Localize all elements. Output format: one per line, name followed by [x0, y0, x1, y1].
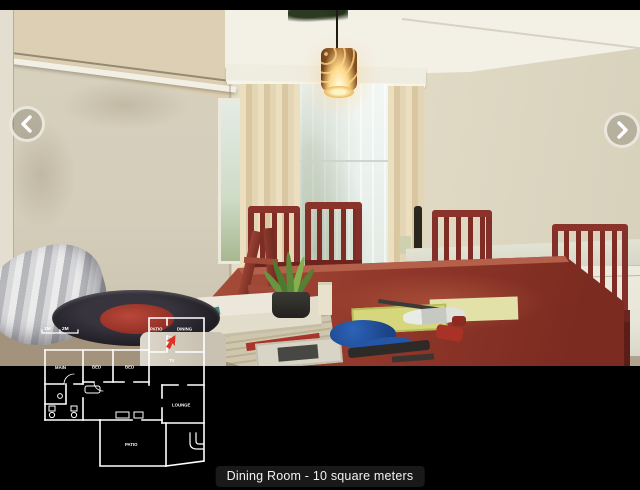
lamp-cord	[336, 10, 338, 50]
floorplan-walls	[42, 318, 204, 466]
red-item	[452, 316, 466, 326]
next-scene-button[interactable]	[604, 112, 640, 148]
room-caption: Dining Room - 10 square meters	[216, 466, 425, 487]
letterbox-top	[0, 0, 640, 10]
room-label-main: MAIN	[55, 365, 66, 370]
floorplan-svg: 1M 2M PATIO DINING TV MAIN BED BED LOUNG…	[38, 312, 208, 468]
room-label-patio-bottom: PATIO	[125, 442, 138, 447]
dining-chair	[305, 202, 362, 266]
room-label-bed1: BED	[92, 365, 101, 370]
chevron-left-icon	[18, 113, 36, 135]
plant-pot	[272, 292, 310, 318]
room-label-tv: TV	[169, 358, 175, 363]
chevron-right-icon	[613, 119, 631, 141]
candle	[318, 282, 332, 315]
branch-silhouette	[288, 10, 348, 24]
prev-scene-button[interactable]	[9, 106, 45, 142]
scale-label-2m: 2M	[62, 326, 69, 332]
virtual-tour-viewer: 1M 2M PATIO DINING TV MAIN BED BED LOUNG…	[0, 0, 640, 490]
room-label-dining: DINING	[177, 327, 193, 332]
scale-label-1m: 1M	[44, 326, 51, 332]
wall-stain	[60, 80, 190, 130]
window-sash	[300, 160, 390, 162]
position-marker-icon	[164, 332, 180, 350]
room-label-lounge: LOUNGE	[172, 403, 191, 408]
room-label-bed2: BED	[125, 365, 134, 370]
bottle	[414, 206, 422, 248]
floorplan-minimap[interactable]: 1M 2M PATIO DINING TV MAIN BED BED LOUNG…	[38, 312, 208, 468]
lamp-glow	[324, 86, 354, 98]
room-label-patio-top: PATIO	[150, 327, 163, 332]
